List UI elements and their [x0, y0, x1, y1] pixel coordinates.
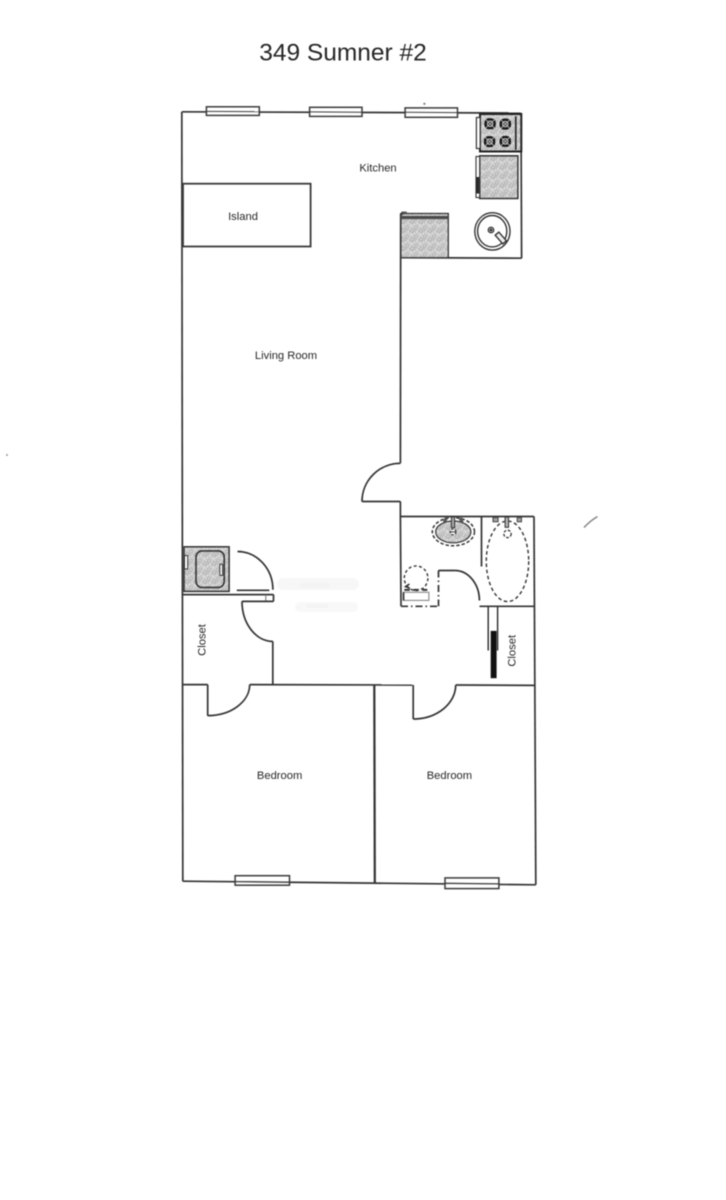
svg-text:Island: Island	[228, 211, 258, 223]
svg-text:349 Sumner #2: 349 Sumner #2	[259, 40, 427, 67]
svg-text:Bedroom: Bedroom	[427, 770, 472, 782]
svg-text:Kitchen: Kitchen	[359, 163, 396, 175]
svg-text:Living Room: Living Room	[255, 350, 317, 362]
svg-text:Bedroom: Bedroom	[257, 770, 302, 782]
svg-text:Closet: Closet	[197, 623, 209, 656]
svg-text:Closet: Closet	[507, 634, 519, 667]
